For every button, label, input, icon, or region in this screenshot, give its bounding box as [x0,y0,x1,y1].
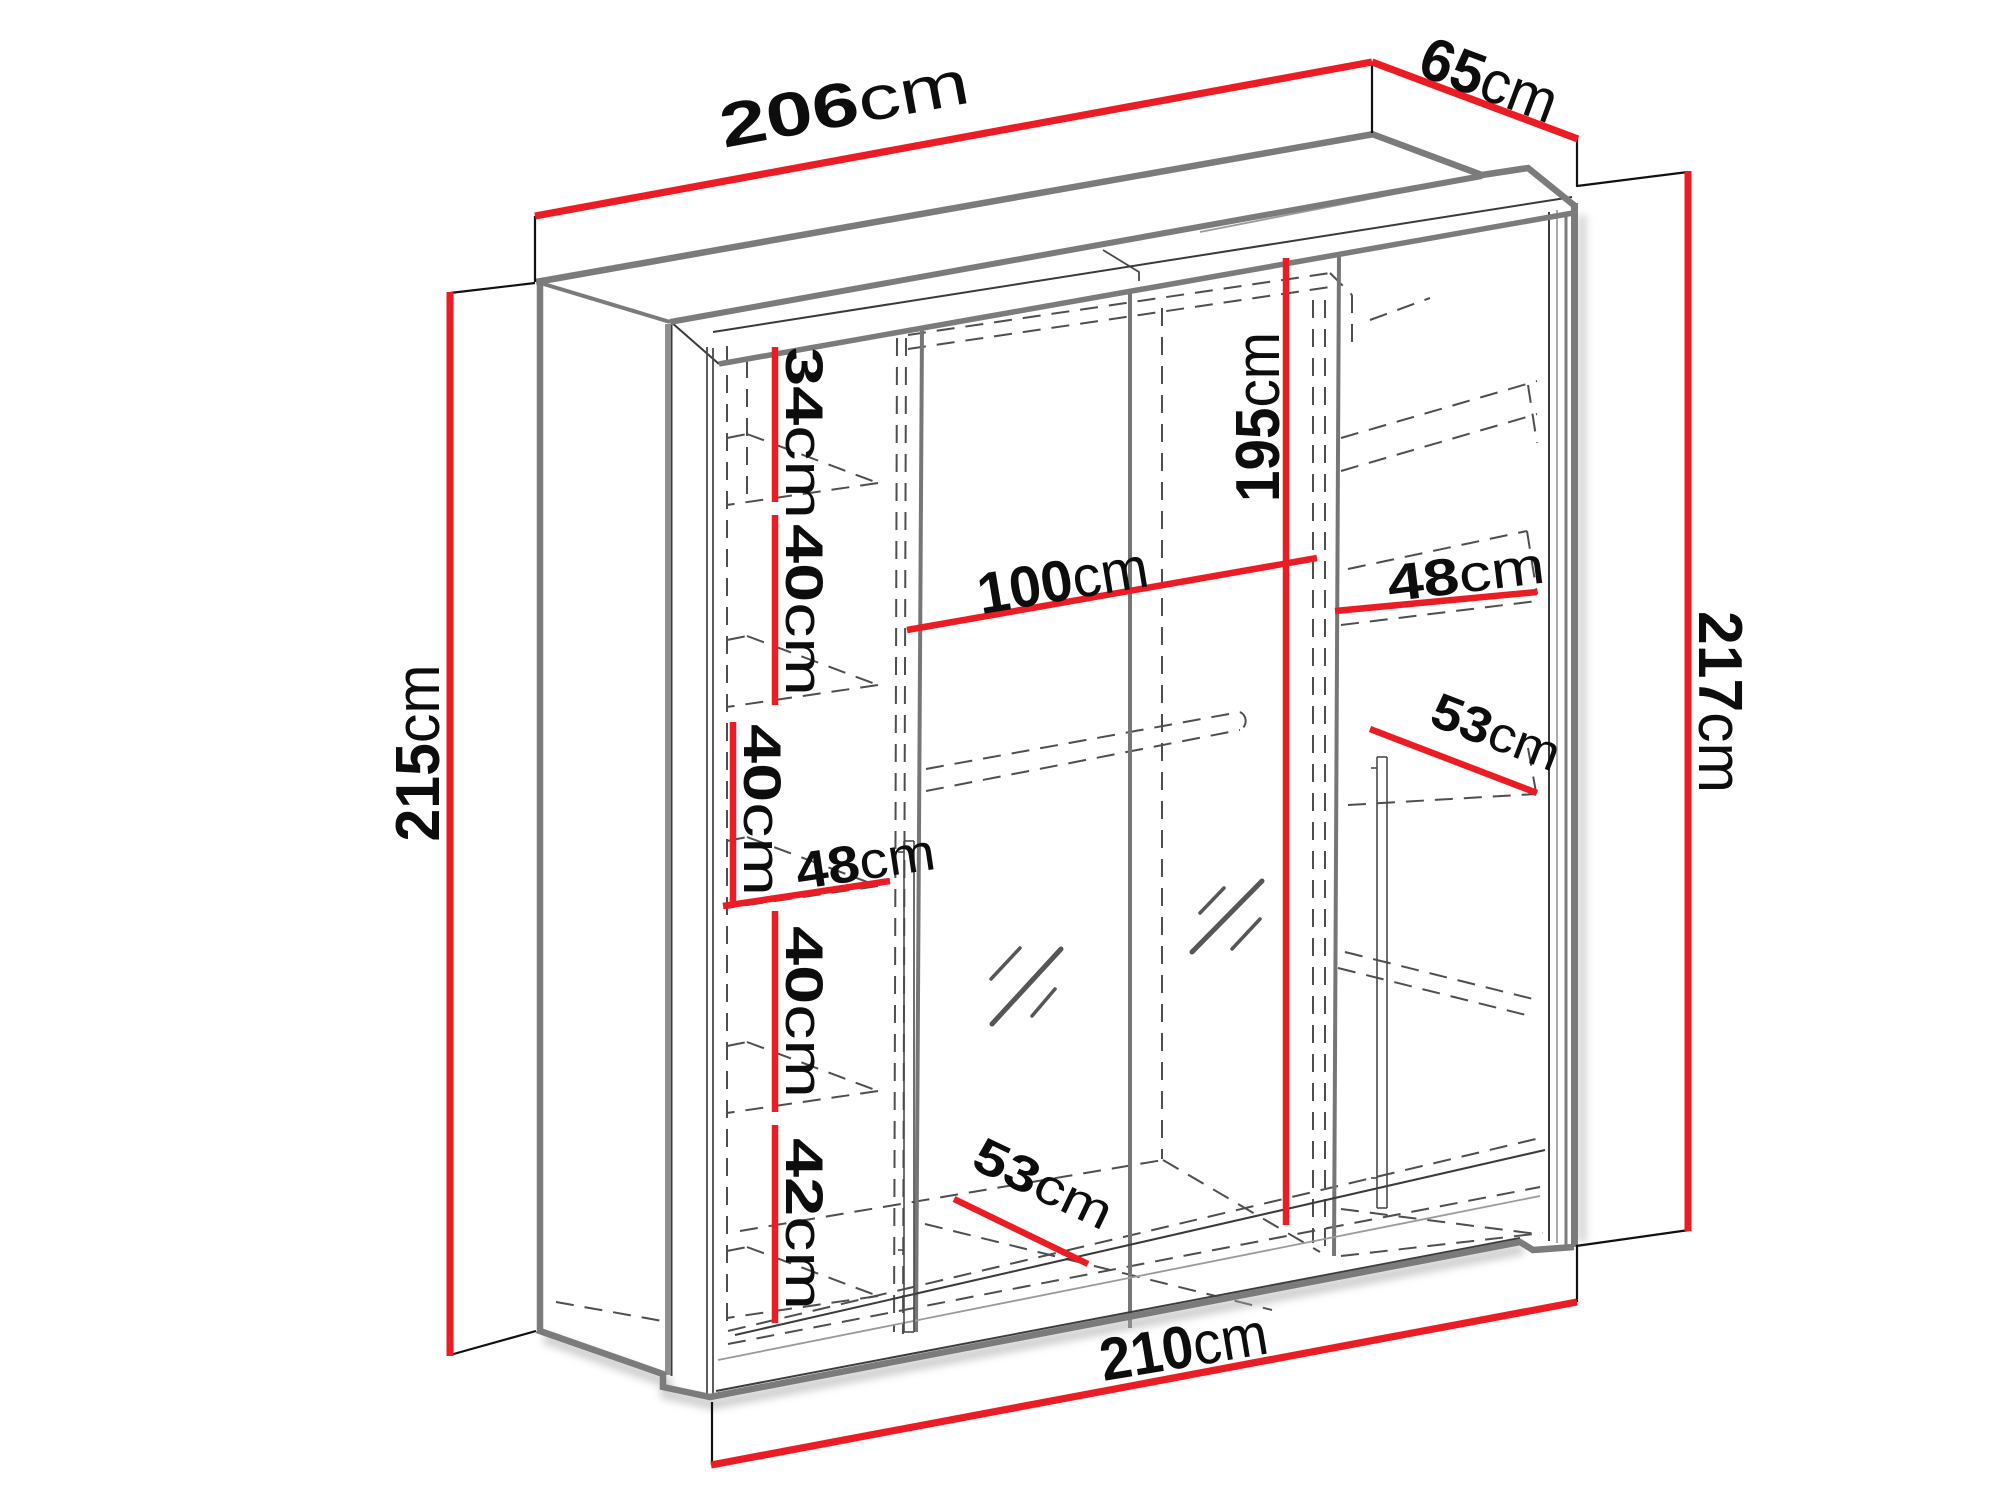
svg-text:217cm: 217cm [1685,611,1754,793]
svg-text:40cm: 40cm [774,524,833,696]
svg-text:40cm: 40cm [774,926,833,1098]
svg-text:195cm: 195cm [1224,332,1293,502]
svg-text:34cm: 34cm [774,347,833,519]
svg-text:42cm: 42cm [774,1138,833,1310]
svg-text:40cm: 40cm [732,724,791,896]
svg-text:215cm: 215cm [384,665,453,842]
